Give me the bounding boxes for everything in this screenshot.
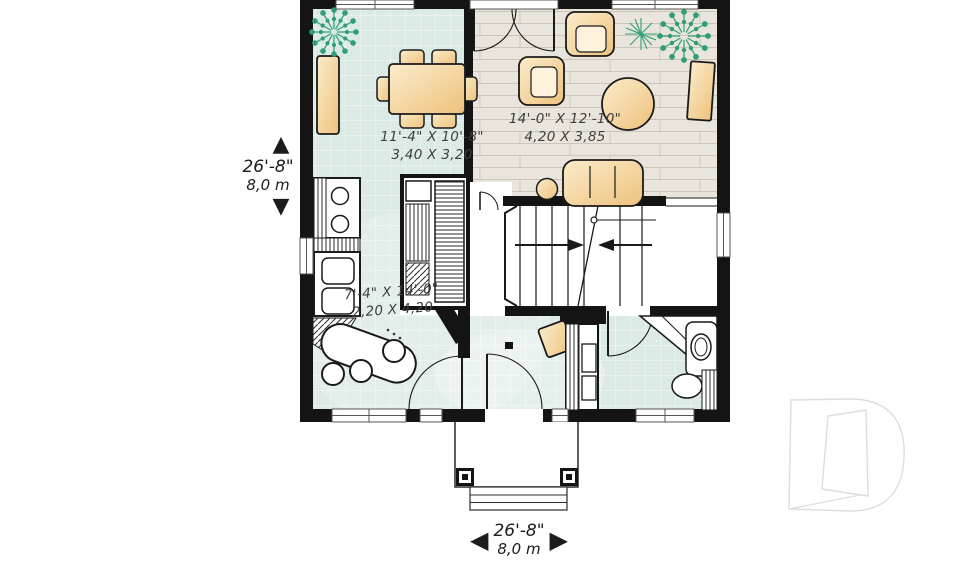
dimension-arrow-left-icon: ◀ <box>470 528 488 552</box>
living-room-label: 14'-0" X 12'-10" 4,20 X 3,85 <box>509 110 621 146</box>
dimension-arrow-up-icon: ▲ <box>273 134 290 156</box>
stove-burner <box>332 188 349 205</box>
window <box>612 0 698 9</box>
dimension-arrow-down-icon: ▼ <box>273 196 290 218</box>
toilet <box>672 374 702 398</box>
drummond-d-logo <box>789 399 904 511</box>
dining-dimensions-imperial: 11'-4" X 10'-8" <box>380 128 483 146</box>
side-table <box>537 179 558 200</box>
stove-burner <box>332 216 349 233</box>
bathroom-vanity <box>686 322 717 376</box>
porch-steps <box>470 487 567 510</box>
stair-newel-post <box>591 217 597 223</box>
width-metric: 8,0 m <box>493 541 544 558</box>
sofa <box>563 160 643 206</box>
floor-plan-drawing <box>0 0 960 569</box>
living-dimensions-imperial: 14'-0" X 12'-10" <box>509 110 621 128</box>
width-imperial: 26'-8" <box>493 522 544 541</box>
window <box>420 409 442 422</box>
dining-table <box>389 64 465 114</box>
window <box>332 409 406 422</box>
window <box>552 409 568 422</box>
floor-plan-page: 11'-4" X 10'-8" 3,40 X 3,20 14'-0" X 12'… <box>0 0 960 569</box>
bar-stool <box>383 340 405 362</box>
bar-stool <box>322 363 344 385</box>
overall-width-dimension: ◀ 26'-8" 8,0 m ▶ <box>444 522 594 558</box>
porch <box>455 422 578 510</box>
window <box>717 213 730 257</box>
bathroom-counter <box>702 370 717 410</box>
window <box>336 0 414 9</box>
bar-stool <box>350 360 372 382</box>
dining-room-label: 11'-4" X 10'-8" 3,40 X 3,20 <box>380 128 483 164</box>
pantry-shelves <box>435 181 464 302</box>
dimension-arrow-right-icon: ▶ <box>550 528 568 552</box>
window <box>636 409 694 422</box>
kitchen-label: 7'-4" X 14'-0" 2,20 X 4,20 <box>344 280 441 323</box>
buffet-cabinet <box>317 56 339 134</box>
depth-imperial: 26'-8" <box>242 158 293 177</box>
overall-depth-dimension: ▲ 26'-8" 8,0 m ▼ <box>222 134 314 218</box>
window <box>300 238 313 274</box>
living-dimensions-metric: 4,20 X 3,85 <box>509 128 621 146</box>
depth-metric: 8,0 m <box>242 177 293 194</box>
shelf-unit <box>687 61 715 121</box>
dining-dimensions-metric: 3,40 X 3,20 <box>380 146 483 164</box>
